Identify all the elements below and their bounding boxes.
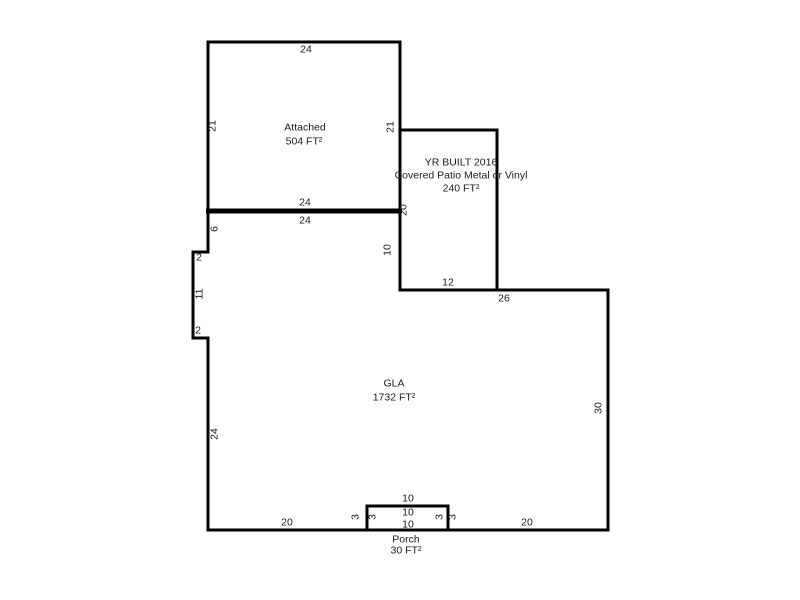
dim-porch-left-outer: 3 [351, 514, 362, 520]
dim-garage-bottom: 24 [299, 198, 311, 209]
patio-area-label: 240 FT² [443, 184, 480, 195]
dim-porch-right-outer: 3 [448, 514, 459, 520]
dim-gla-top: 24 [299, 216, 311, 227]
gla-outline [193, 211, 608, 530]
dim-porch-mid: 10 [402, 508, 414, 519]
dim-garage-right: 21 [386, 121, 397, 133]
dim-porch-top: 10 [402, 494, 414, 505]
sketch-walls [0, 0, 800, 600]
dim-patio-left: 20 [399, 204, 410, 216]
dim-gla-right-upper: 10 [383, 244, 394, 256]
patio-outline [400, 130, 497, 290]
dim-jog-bottom: 2 [195, 326, 201, 337]
dim-porch-right-inner: 3 [435, 514, 446, 520]
porch-area-label: 30 FT² [391, 546, 422, 557]
garage-name-label: Attached [284, 123, 325, 134]
dim-gla-bottom-right: 20 [521, 518, 533, 529]
dim-garage-left: 21 [208, 120, 219, 132]
dim-porch-left-inner: 3 [368, 514, 379, 520]
floorplan-sketch: Attached 504 FT² YR BUILT 2016 Covered P… [0, 0, 800, 600]
dim-jog-top: 2 [196, 253, 202, 264]
patio-year-label: YR BUILT 2016 [425, 158, 498, 169]
garage-area-label: 504 FT² [286, 137, 323, 148]
dim-gla-left-lower: 24 [210, 428, 221, 440]
gla-area-label: 1732 FT² [373, 393, 416, 404]
dim-jog-middle: 11 [195, 289, 206, 300]
dim-gla-left-upper: 6 [210, 226, 221, 232]
dim-gla-top-right: 26 [498, 294, 510, 305]
gla-name-label: GLA [383, 379, 404, 390]
dim-gla-right: 30 [594, 402, 605, 414]
dim-patio-bottom: 12 [442, 278, 454, 289]
dim-gla-bottom-left: 20 [281, 518, 293, 529]
dim-garage-top: 24 [300, 45, 312, 56]
dim-porch-bottom: 10 [402, 520, 414, 531]
patio-desc-label: Covered Patio Metal or Vinyl [395, 171, 528, 182]
